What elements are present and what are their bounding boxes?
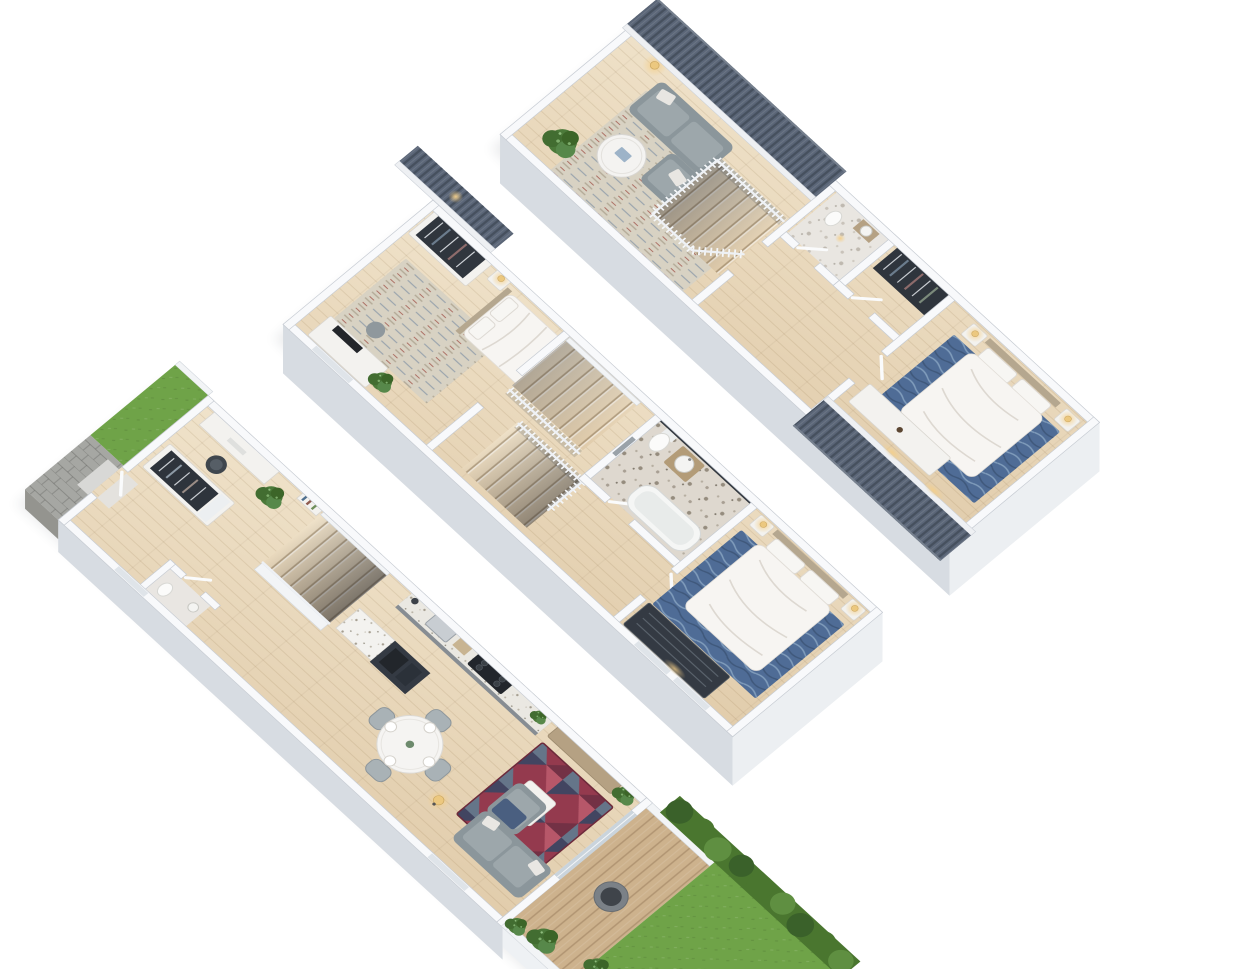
isometric-render [0, 0, 1254, 969]
floorplan-canvas [0, 0, 1254, 969]
